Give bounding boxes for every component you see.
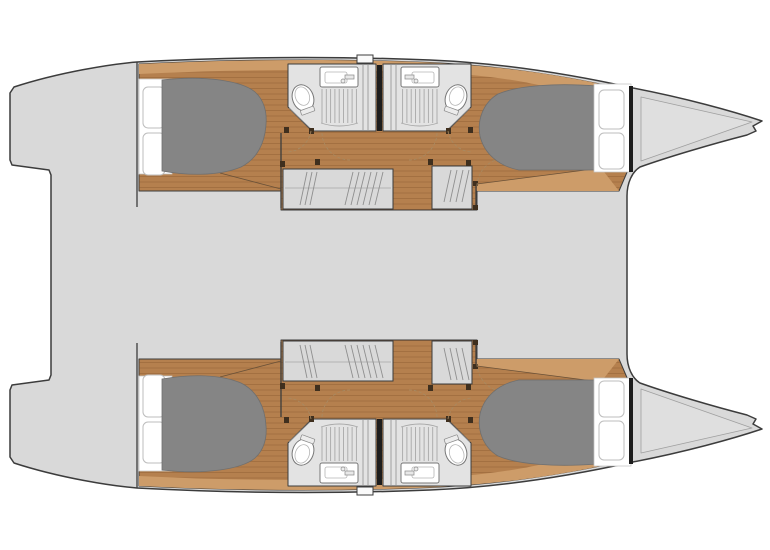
floor-plan-viewer: [0, 0, 770, 550]
catamaran-floor-plan: [0, 0, 770, 550]
hull-interior-starboard: [137, 340, 752, 495]
hull-interior-port: [137, 55, 752, 210]
